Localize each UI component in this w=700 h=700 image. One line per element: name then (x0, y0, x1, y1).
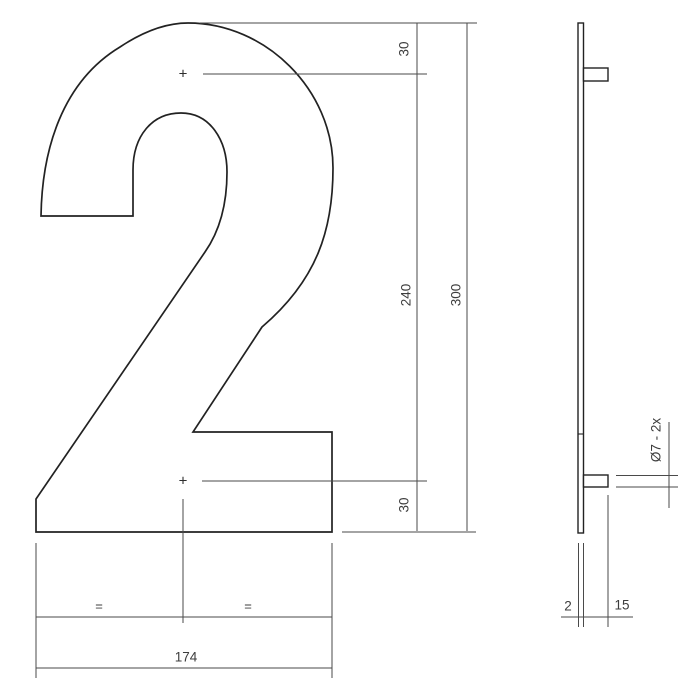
equal-spacing-label-left: = (95, 599, 103, 614)
dim-label-plate-thickness: 2 (564, 599, 572, 614)
house-number-2-drawing: + + 30 240 300 30 = = 174 (0, 0, 700, 700)
mounting-plate-profile (578, 23, 584, 533)
dim-label-total-height: 300 (449, 284, 464, 307)
front-view-height-dimensions: 30 240 300 30 (200, 23, 477, 532)
dim-label-stud-length: 15 (614, 598, 629, 613)
upper-hole-center-marker: + (179, 66, 188, 83)
dim-label-top-offset: 30 (397, 41, 412, 56)
dim-label-bottom-offset: 30 (397, 497, 412, 512)
front-view-width-dimensions: = = 174 (36, 499, 332, 678)
dim-label-hole-spacing: 240 (399, 284, 414, 307)
equal-spacing-label-right: = (244, 599, 252, 614)
lower-mounting-stud (584, 475, 609, 487)
front-view: + + (36, 23, 333, 532)
numeral-2-outline (36, 23, 333, 532)
side-view (578, 23, 609, 533)
technical-drawing-page: + + 30 240 300 30 = = 174 (0, 0, 700, 700)
lower-hole-center-marker: + (179, 473, 188, 490)
dim-label-stud-spec: Ø7 - 2x (649, 418, 664, 463)
dim-label-total-width: 174 (175, 650, 198, 665)
upper-mounting-stud (584, 68, 609, 81)
